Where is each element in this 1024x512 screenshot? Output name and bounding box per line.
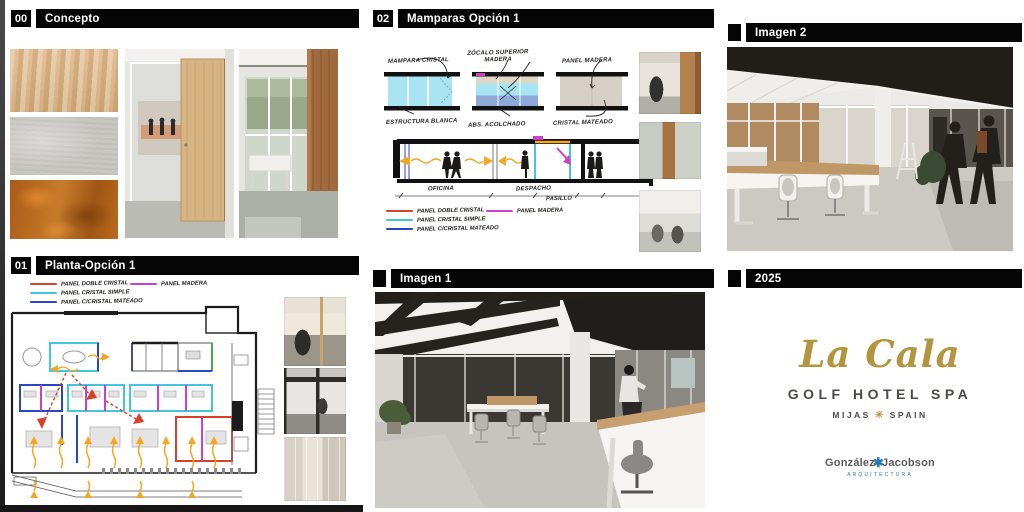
mamparas-ref-photo-1 [639,52,701,114]
firm-subtitle: ARQUITECTURA [747,472,1013,478]
concepto-number-box: 00 [10,9,32,28]
presentation-slide: 00 Concepto 02 Mamparas Opción 1 Imagen … [0,0,1024,512]
legend-label-doble-cristal: PANEL DOBLE CRISTAL [61,281,128,288]
imagen2-header: Imagen 2 [746,23,1022,42]
planta-number-box: 01 [10,256,32,275]
imagen1-title: Imagen 1 [400,273,451,285]
lacala-mijas: MIJAS [832,410,870,420]
concepto-photo-office [239,49,338,238]
imagen1-marker-box [372,269,387,288]
imagen1-header: Imagen 1 [391,269,714,288]
mamparas-legend: PANEL DOBLE CRISTAL PANEL MADERA PANEL C… [386,208,586,238]
planta-number: 01 [15,260,27,272]
planta-ref-photo-1 [284,297,346,366]
imagen2-title: Imagen 2 [755,27,806,39]
concepto-header: Concepto [36,9,359,28]
label-pasillo: PASILLO [546,196,572,203]
slide-edge-left [0,0,5,512]
mamparas-ref-photo-2 [639,122,701,179]
mamparas-title: Mamparas Opción 1 [407,13,520,25]
label-zocalo: ZÓCALO SUPERIOR MADERA [466,49,530,65]
legend-label-cristal-simple: PANEL CRISTAL SIMPLE [417,217,486,224]
legend-swatch-madera [130,283,157,285]
legend-label-cristal-simple: PANEL CRISTAL SIMPLE [61,290,130,297]
legend-label-madera: PANEL MADERA [517,209,563,216]
imagen1-render [375,292,705,508]
label-despacho: DESPACHO [516,186,551,194]
firm-name-left: González [825,457,875,469]
lacala-logo-script: La Cala [747,332,1013,376]
concepto-title: Concepto [45,13,100,25]
legend-label-madera: PANEL MADERA [161,282,207,289]
year-title: 2025 [755,273,781,285]
lacala-logo-line2: MIJAS✳SPAIN [747,410,1013,421]
firm-logo: González✱Jacobson ARQUITECTURA [747,455,1013,478]
mamparas-header: Mamparas Opción 1 [398,9,714,28]
legend-swatch-doble-cristal [30,283,57,285]
year-marker-box [727,269,742,288]
firm-name-right: Jacobson [882,457,935,469]
legend-label-doble-cristal: PANEL DOBLE CRISTAL [417,208,484,215]
planta-ref-photo-2 [284,368,346,434]
planta-ref-photo-3 [284,437,346,501]
label-oficina: OFICINA [428,186,454,194]
mamparas-number-box: 02 [372,9,394,28]
material-swatch-concrete [10,117,118,175]
year-header: 2025 [746,269,1022,288]
concepto-number: 00 [15,13,27,25]
mamparas-number: 02 [377,13,389,25]
legend-swatch-cristal-simple [30,292,57,294]
section-sketch [385,132,665,210]
legend-swatch-cristal-mateado [30,301,57,303]
legend-swatch-doble-cristal [386,210,413,212]
mamparas-ref-photo-3 [639,190,701,252]
lacala-logo-line1: GOLF HOTEL SPA [747,386,1013,402]
material-swatch-corten [10,180,118,239]
planta-title: Planta-Opción 1 [45,260,136,272]
legend-swatch-cristal-simple [386,219,413,221]
legend-swatch-madera [486,210,513,212]
label-panel-madera: PANEL MADERA [562,57,612,65]
imagen2-marker-box [727,23,742,42]
material-swatch-wood [10,49,118,112]
lacala-spain: SPAIN [890,410,928,420]
legend-swatch-cristal-mateado [386,228,413,230]
legend-label-cristal-mateado: PANEL C/CRISTAL MATEADO [417,226,499,234]
imagen2-render [727,47,1013,251]
slide-edge-bottom [0,505,363,512]
planta-header: Planta-Opción 1 [36,256,359,275]
floor-plan [6,305,280,503]
lacala-ornament-icon: ✳ [871,410,890,421]
concepto-photo-door [125,49,234,238]
